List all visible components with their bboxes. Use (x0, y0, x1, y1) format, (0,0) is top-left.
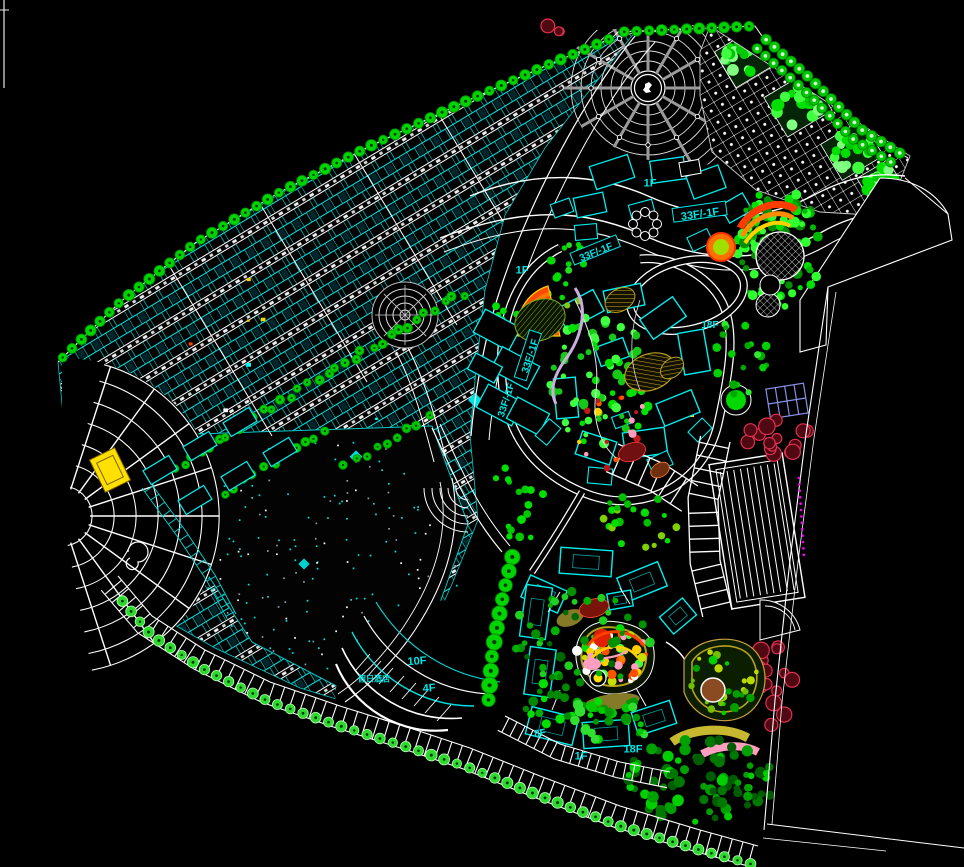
svg-text:1F: 1F (575, 751, 588, 763)
svg-text:4F: 4F (422, 682, 436, 695)
svg-text:10F: 10F (407, 655, 427, 668)
svg-text:假日酒店: 假日酒店 (358, 674, 390, 684)
svg-text:1F: 1F (516, 265, 529, 277)
svg-text:1F: 1F (644, 178, 657, 190)
svg-text:18F: 18F (624, 744, 643, 756)
svg-text:8F: 8F (533, 727, 546, 740)
svg-text:18F: 18F (701, 320, 718, 331)
